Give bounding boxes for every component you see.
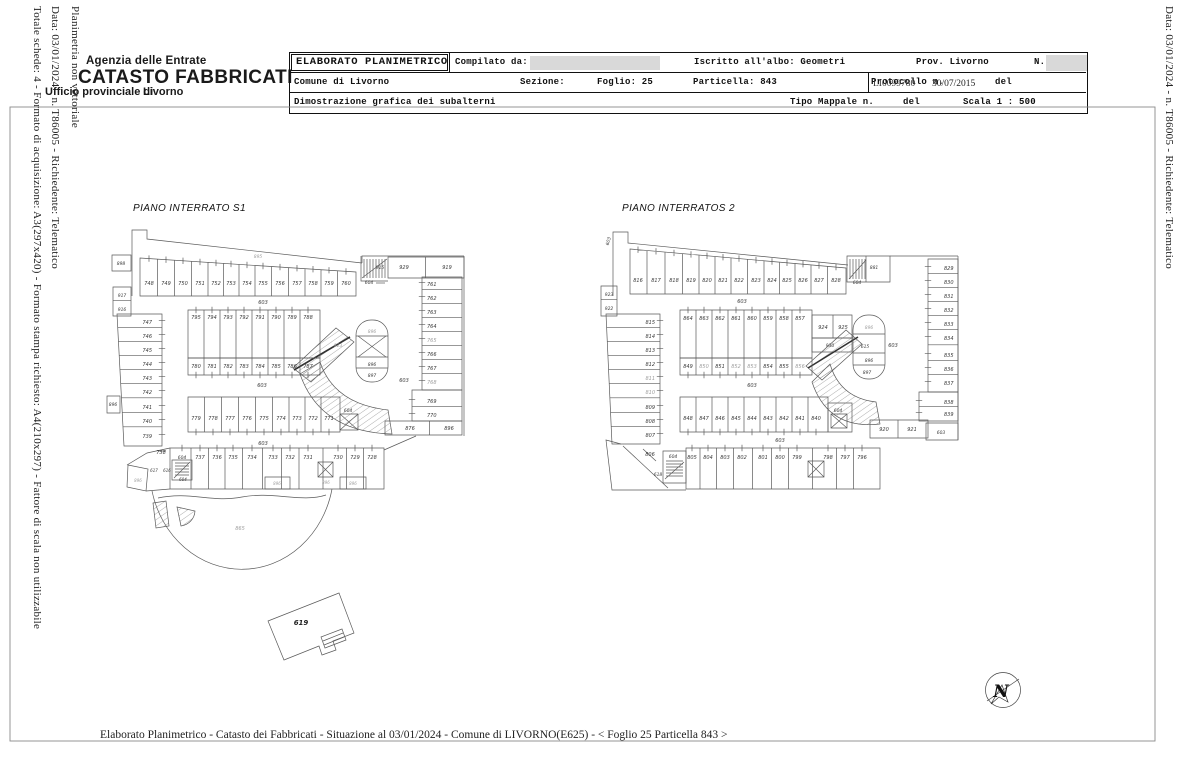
- north-arrow-icon: N: [986, 673, 1021, 708]
- plan-label: 801: [758, 455, 768, 461]
- plan-label: 603: [257, 383, 267, 389]
- plan-label: 616: [163, 468, 171, 473]
- plan-label: 896: [349, 481, 357, 486]
- plan-label: 778: [208, 416, 218, 422]
- plan-label: 898: [117, 261, 126, 267]
- plan-label: 781: [207, 364, 217, 370]
- plan-label: 774: [276, 416, 286, 422]
- ramp-hatch: [177, 507, 195, 526]
- plan-label: 785: [271, 364, 281, 370]
- plan-label: 809: [645, 405, 655, 411]
- plan-label: 930: [826, 343, 835, 349]
- plan-label: 811: [645, 376, 655, 382]
- plan-label: 924: [818, 325, 828, 331]
- plan-label: 794: [207, 315, 217, 321]
- plan-label: 833: [944, 322, 954, 328]
- plan-label: 603: [737, 299, 747, 305]
- plan-label: 826: [798, 278, 808, 284]
- plan-label: 834: [944, 336, 954, 342]
- plan-label: 790: [271, 315, 281, 321]
- plan-label: 737: [195, 455, 205, 461]
- plan-label: 925: [838, 325, 848, 331]
- plan-label: 915: [376, 265, 385, 271]
- plan-label: 923: [334, 343, 343, 349]
- plan-label: 760: [341, 281, 351, 287]
- plan-wall: [849, 259, 866, 279]
- plan-label: 735: [228, 455, 238, 461]
- plan-label: 745: [142, 348, 152, 354]
- plan-label: 852: [731, 364, 741, 370]
- plan-label: 779: [191, 416, 201, 422]
- plan-label: 799: [792, 455, 802, 461]
- plan-label: 604: [178, 455, 187, 461]
- plan-label: 603: [888, 343, 898, 349]
- plan-label: 791: [255, 315, 265, 321]
- plan-label: 836: [944, 367, 954, 373]
- plan-label: 897: [368, 373, 377, 379]
- plan-label: 619: [294, 619, 309, 627]
- plan-label: 896: [444, 426, 454, 432]
- plan-label: 786: [287, 364, 297, 370]
- plan-label: 783: [239, 364, 249, 370]
- plan-label: 818: [669, 278, 679, 284]
- plan-label: 929: [399, 265, 409, 271]
- plan-label: 895: [254, 254, 263, 260]
- plan-label: 603: [258, 300, 268, 306]
- plan-wall: [384, 436, 416, 450]
- plan-label: 771: [324, 416, 334, 422]
- plan-label: 916: [118, 307, 127, 313]
- plan-label: 730: [333, 455, 343, 461]
- plan-label: 795: [191, 315, 201, 321]
- plan-label: 827: [814, 278, 824, 284]
- plan-label: 744: [142, 362, 152, 368]
- plan-label: 754: [242, 281, 252, 287]
- plan-label: 853: [747, 364, 757, 370]
- plan-drawing: N 74874975075175275375475575675775875976…: [0, 0, 1200, 768]
- plan-label: 747: [142, 320, 152, 326]
- plan-label: 840: [811, 416, 821, 422]
- plan-label: 820: [702, 278, 712, 284]
- plan-label: 919: [442, 265, 452, 271]
- plan-label: 881: [870, 265, 879, 271]
- plan-label: 835: [944, 353, 954, 359]
- plan-label: 759: [324, 281, 334, 287]
- plan-label: 789: [287, 315, 297, 321]
- plan-label: 788: [303, 315, 313, 321]
- plan-label: 603: [775, 438, 785, 444]
- plan-label: 793: [223, 315, 233, 321]
- plan-label: 757: [292, 281, 302, 287]
- plan-wall: [808, 461, 824, 477]
- plan-label: 604: [669, 454, 678, 460]
- plan-label: 838: [944, 400, 954, 406]
- plan-label: 848: [683, 416, 693, 422]
- plan-label: 743: [142, 376, 152, 382]
- plan-label: 775: [259, 416, 269, 422]
- plan-label: 752: [211, 281, 221, 287]
- plan-label: 765: [427, 338, 437, 344]
- plan-label: 830: [944, 280, 954, 286]
- plan-label: 896: [273, 481, 281, 486]
- plan-label: 837: [944, 381, 954, 387]
- plan-label: 777: [225, 416, 235, 422]
- plan-label: 861: [731, 316, 741, 322]
- plan-label: 617: [150, 468, 158, 473]
- plan-wall: [665, 461, 684, 479]
- plan-label: 773: [292, 416, 302, 422]
- plan-label: 862: [715, 316, 725, 322]
- plan-label: 829: [944, 266, 954, 272]
- plan-label: 618: [654, 472, 663, 478]
- plan-label: 782: [223, 364, 233, 370]
- plan-label: 896: [134, 478, 142, 483]
- plan-wall: [146, 489, 170, 491]
- plan-label: 603: [258, 441, 268, 447]
- plan-wall: [158, 495, 326, 499]
- plan-label: 847: [699, 416, 709, 422]
- plan-label: 761: [427, 282, 437, 288]
- stall-row: [680, 307, 812, 358]
- plan-label: 846: [715, 416, 725, 422]
- plan-label: 729: [350, 455, 360, 461]
- plan-label: 865: [235, 526, 245, 532]
- plan-label: 859: [763, 316, 773, 322]
- sheet-frame: [10, 107, 1155, 741]
- plan-label: 825: [782, 278, 792, 284]
- plan-wall: [321, 629, 346, 648]
- plan-label: 603: [605, 236, 613, 246]
- plan-label: 603: [937, 430, 946, 436]
- plan-label: 876: [405, 426, 415, 432]
- document-page: Totale schede: 4 - Formato di acquisizio…: [0, 0, 1200, 768]
- plan-label: 797: [840, 455, 850, 461]
- plan-label: 814: [645, 334, 655, 340]
- plan-label: 817: [651, 278, 661, 284]
- plan-label: 728: [367, 455, 377, 461]
- plan-label: 813: [645, 348, 655, 354]
- plan-label: 766: [427, 352, 437, 358]
- plan-label: 769: [427, 399, 437, 405]
- plan-label: 843: [763, 416, 773, 422]
- plan-label: 851: [715, 364, 725, 370]
- ramp-hatch: [300, 362, 392, 434]
- plan-label: 856: [795, 364, 805, 370]
- plan-label: 808: [645, 419, 655, 425]
- plan-label: 763: [427, 310, 437, 316]
- plan-label: 731: [303, 455, 313, 461]
- plan-label: 746: [142, 334, 152, 340]
- plan-label: 804: [703, 455, 713, 461]
- plan-label: 896: [865, 358, 874, 364]
- svg-text:N: N: [992, 682, 1010, 702]
- plan-label: 734: [247, 455, 257, 461]
- plan-label: 603: [399, 378, 409, 384]
- plan-label: 772: [308, 416, 318, 422]
- plan-label: 741: [142, 405, 152, 411]
- plan-label: 802: [737, 455, 747, 461]
- plan-label: 806: [645, 452, 655, 458]
- plan-label: 922: [605, 306, 614, 312]
- plan-label: 738: [156, 450, 166, 456]
- plan-wall: [174, 462, 190, 478]
- plan-label: 750: [178, 281, 188, 287]
- plan-label: 831: [944, 294, 954, 300]
- plan-label: 845: [731, 416, 741, 422]
- stall-row: [140, 255, 356, 296]
- plan-label: 740: [142, 419, 152, 425]
- plan-label: 604: [853, 280, 862, 286]
- plan-wall: [613, 232, 848, 296]
- stall-row: [686, 445, 880, 489]
- stall-row: [419, 277, 462, 390]
- plan-label: 816: [633, 278, 643, 284]
- plan-label: 798: [823, 455, 833, 461]
- plan-wall: [318, 462, 333, 477]
- plan-label: 739: [142, 434, 152, 440]
- plan-label: 762: [427, 296, 437, 302]
- plan-label: 764: [427, 324, 437, 330]
- plan-label: 807: [645, 433, 655, 439]
- plan-label: 803: [720, 455, 730, 461]
- plan-label: 897: [863, 370, 872, 376]
- plan-wall: [268, 593, 354, 660]
- plan-label: 841: [795, 416, 805, 422]
- plan-label: 732: [285, 455, 295, 461]
- plan-label: 784: [255, 364, 265, 370]
- plan-label: 812: [645, 362, 655, 368]
- plan-label: 855: [779, 364, 789, 370]
- plan-label: 828: [831, 278, 841, 284]
- plan-label: 604: [344, 408, 353, 414]
- plan-label: 756: [275, 281, 285, 287]
- stall-row: [117, 314, 165, 446]
- plan-label: 810: [645, 390, 655, 396]
- plan-label: 857: [795, 316, 805, 322]
- plan-label: 736: [212, 455, 222, 461]
- plan-label: 863: [699, 316, 709, 322]
- plan-label: 896: [109, 402, 118, 408]
- ramp-hatch: [806, 330, 862, 380]
- plan-label: 821: [718, 278, 728, 284]
- plan-label: 815: [645, 320, 655, 326]
- plan-label: 824: [767, 278, 777, 284]
- plan-label: 615: [861, 344, 870, 350]
- plan-label: 604: [834, 408, 843, 414]
- plan-label: 780: [191, 364, 201, 370]
- plan-label: 920: [879, 427, 889, 433]
- plan-label: 832: [944, 308, 954, 314]
- plan-label: 921: [907, 427, 917, 433]
- plan-label: 776: [242, 416, 252, 422]
- plan-label: 917: [118, 293, 127, 299]
- plan-label: 751: [195, 281, 205, 287]
- plan-label: 800: [775, 455, 785, 461]
- plan-label: 733: [268, 455, 278, 461]
- plan-label: 604: [179, 477, 187, 482]
- plan-label: 844: [747, 416, 757, 422]
- plan-label: 860: [747, 316, 757, 322]
- plan-label: 842: [779, 416, 789, 422]
- plan-label: 896: [368, 329, 377, 335]
- plan-label: 768: [427, 380, 437, 386]
- plan-label: 819: [686, 278, 696, 284]
- plan-label: 849: [683, 364, 693, 370]
- plan-label: 839: [944, 412, 954, 418]
- stall-row: [630, 247, 846, 295]
- plan-label: 854: [763, 364, 773, 370]
- plan-label: 796: [857, 455, 867, 461]
- plan-label: 864: [683, 316, 693, 322]
- plan-label: 850: [699, 364, 709, 370]
- plan-label: 749: [161, 281, 171, 287]
- plan-label: 758: [308, 281, 318, 287]
- plan-label: 923: [605, 292, 614, 298]
- plan-label: 742: [142, 390, 152, 396]
- plan-label: 787: [303, 364, 313, 370]
- plan-label: 858: [779, 316, 789, 322]
- plan-wall: [606, 440, 686, 490]
- plan-label: 748: [144, 281, 154, 287]
- plan-label: 604: [365, 280, 374, 286]
- plan-wall: [847, 256, 890, 282]
- plan-label: 896: [322, 480, 330, 485]
- plan-label: 823: [751, 278, 761, 284]
- plan-label: 896: [865, 325, 874, 331]
- plan-label: 603: [747, 383, 757, 389]
- plan-label: 767: [427, 366, 437, 372]
- plan-label: 805: [687, 455, 697, 461]
- plan-label: 755: [258, 281, 268, 287]
- plan-label: 896: [368, 362, 377, 368]
- plan-label: 822: [734, 278, 744, 284]
- plan-label: 792: [239, 315, 249, 321]
- plan-label: 753: [226, 281, 236, 287]
- ramp-hatch: [153, 501, 169, 528]
- plan-label: 770: [427, 413, 437, 419]
